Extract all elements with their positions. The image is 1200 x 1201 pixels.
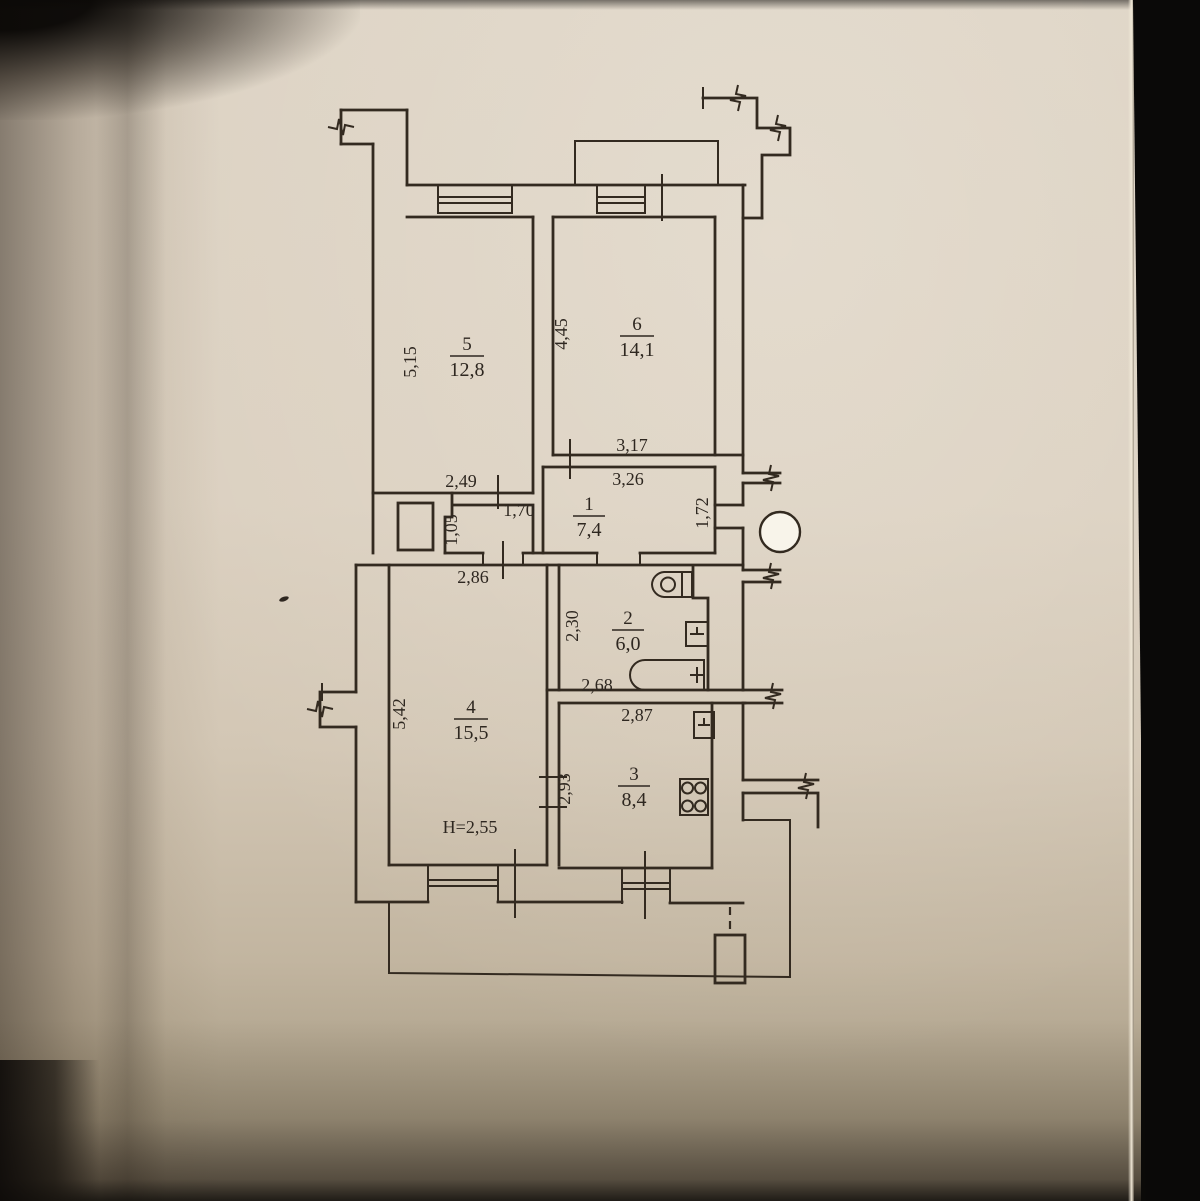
room-4-number-label: 4 <box>466 697 476 718</box>
room-5-area-label: 12,8 <box>450 359 485 381</box>
dim-2-87-label: 2,87 <box>621 705 653 725</box>
stove-icon <box>680 779 708 815</box>
walls <box>320 98 818 977</box>
labels: 5 12,8 5,15 6 14,1 4,45 3,17 3,26 2,49 1… <box>389 314 712 837</box>
floor-plan-drawing: 5 12,8 5,15 6 14,1 4,45 3,17 3,26 2,49 1… <box>0 0 1200 1201</box>
dim-1-70-label: 1,70 <box>503 500 535 520</box>
dim-3-17-label: 3,17 <box>616 435 648 455</box>
dim-1-05-label: 1,05 <box>441 514 461 546</box>
room-6-number-label: 6 <box>632 314 642 335</box>
hole-punch <box>760 512 800 552</box>
room4-window <box>428 865 498 902</box>
dim-2-49-label: 2,49 <box>445 471 477 491</box>
vent-shaft <box>398 503 433 550</box>
dim-5-15-label: 5,15 <box>400 346 420 378</box>
room-3-area-label: 8,4 <box>622 789 647 811</box>
dim-2-68-label: 2,68 <box>581 675 613 695</box>
bath-sink-icon <box>686 622 708 646</box>
terrace-outline <box>389 820 790 977</box>
shaft-box <box>715 907 745 983</box>
toilet-icon <box>652 572 692 597</box>
dim-1-72-label: 1,72 <box>692 497 712 529</box>
room6-window <box>597 185 645 213</box>
room-6-area-label: 14,1 <box>620 339 655 361</box>
room-5-number-label: 5 <box>462 334 472 355</box>
room-2-area-label: 6,0 <box>616 633 641 655</box>
room-1-number-label: 1 <box>584 494 594 515</box>
dim-2-86-label: 2,86 <box>457 567 489 587</box>
dim-5-42-label: 5,42 <box>389 698 409 730</box>
dim-4-45-label: 4,45 <box>551 318 571 350</box>
room5-window <box>438 185 512 213</box>
bathtub-icon <box>630 660 704 690</box>
dim-2-93-label: 2,93 <box>554 773 574 805</box>
balcony-outline <box>575 141 718 185</box>
room-1-area-label: 7,4 <box>577 519 602 541</box>
room-4-area-label: 15,5 <box>454 722 489 744</box>
ink-speck <box>279 595 290 603</box>
room-3-number-label: 3 <box>629 764 639 785</box>
room-2-number-label: 2 <box>623 608 633 629</box>
dim-3-26-label: 3,26 <box>612 469 644 489</box>
wall-break-marks <box>307 85 814 799</box>
dim-2-30-label: 2,30 <box>562 610 582 642</box>
ceiling-height-label: H=2,55 <box>443 817 498 837</box>
